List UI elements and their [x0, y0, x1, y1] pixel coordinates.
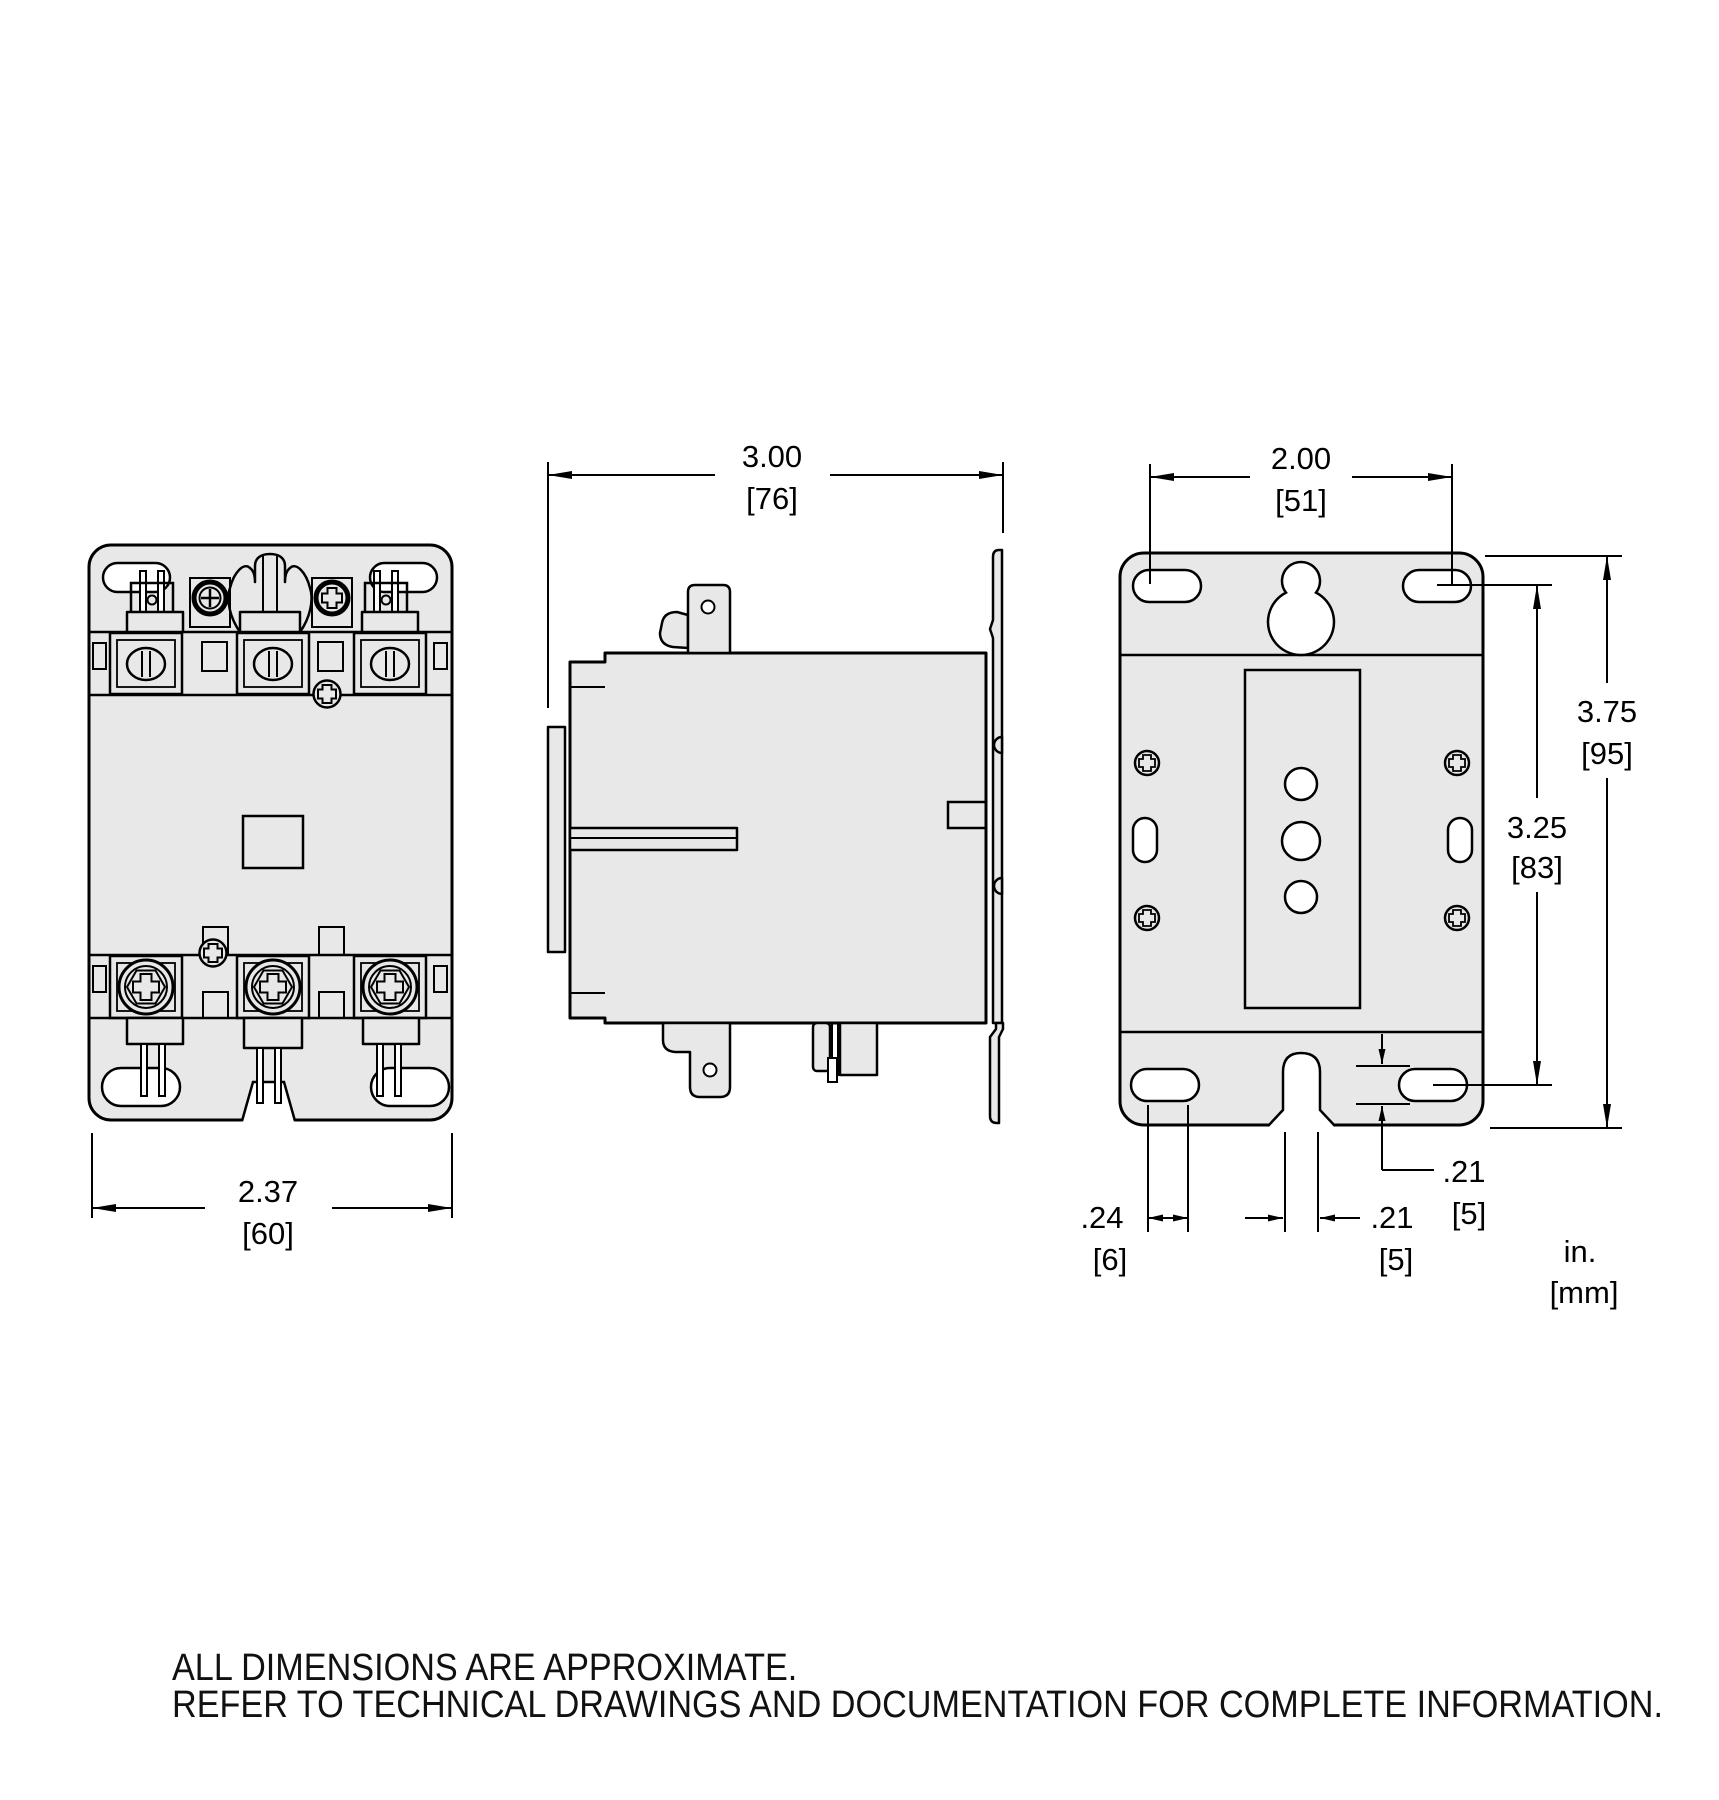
- note-line-2: REFER TO TECHNICAL DRAWINGS AND DOCUMENT…: [172, 1687, 1663, 1724]
- dim-slot-width-in: .24: [1080, 1200, 1123, 1235]
- dim-slot-height-in: .21: [1442, 1154, 1485, 1189]
- dim-front-width: 2.37 [60]: [92, 1133, 452, 1251]
- side-seam: [570, 828, 737, 850]
- dim-front-width-in: 2.37: [238, 1174, 298, 1209]
- dim-back-spacing-v-mm: [83]: [1511, 850, 1563, 885]
- dim-back-spacing-h-in: 2.00: [1271, 441, 1331, 476]
- dim-slot-width: .24 [6]: [1080, 1105, 1188, 1277]
- dim-notch-width-in: .21: [1370, 1200, 1413, 1235]
- side-view: [548, 550, 1003, 1123]
- dim-front-width-mm: [60]: [242, 1216, 294, 1251]
- back-center-holes: [1282, 768, 1320, 913]
- side-spade-terminal-top: [660, 585, 730, 653]
- side-front-flange: [548, 727, 565, 952]
- units-primary: in.: [1564, 1234, 1597, 1269]
- technical-drawing-page: 3.00 [76] 2.00 [51] 2.37 [60] 3.75 [95] …: [0, 0, 1719, 1800]
- dim-notch-width: .21 [5]: [1245, 1132, 1414, 1277]
- dim-back-height-in: 3.75: [1577, 694, 1637, 729]
- side-spade-terminal-bottom: [663, 1023, 730, 1097]
- dim-slot-height-mm: [5]: [1452, 1196, 1486, 1231]
- dim-back-height-mm: [95]: [1581, 736, 1633, 771]
- contactor-dimension-drawing: 3.00 [76] 2.00 [51] 2.37 [60] 3.75 [95] …: [0, 0, 1719, 1800]
- note-line-1: ALL DIMENSIONS ARE APPROXIMATE.: [172, 1650, 1663, 1687]
- dim-back-spacing-v-in: 3.25: [1507, 810, 1567, 845]
- back-view: [1120, 553, 1483, 1127]
- front-bottom-terminal-bases: [127, 1018, 419, 1048]
- units-legend: in. [mm]: [1550, 1234, 1619, 1310]
- dim-notch-width-mm: [5]: [1379, 1242, 1413, 1277]
- drawing-notes: ALL DIMENSIONS ARE APPROXIMATE. REFER TO…: [172, 1650, 1663, 1724]
- front-view: [89, 545, 452, 1124]
- dim-back-spacing-h-mm: [51]: [1275, 483, 1327, 518]
- side-coil-terminals: [813, 1023, 877, 1082]
- units-secondary: [mm]: [1550, 1275, 1619, 1310]
- dim-side-width-mm: [76]: [746, 481, 798, 516]
- front-box-lug-terminals-bottom: [110, 956, 426, 1018]
- dim-side-width-in: 3.00: [742, 439, 802, 474]
- side-mounting-plate: [990, 550, 1003, 1123]
- dim-slot-width-mm: [6]: [1093, 1242, 1127, 1277]
